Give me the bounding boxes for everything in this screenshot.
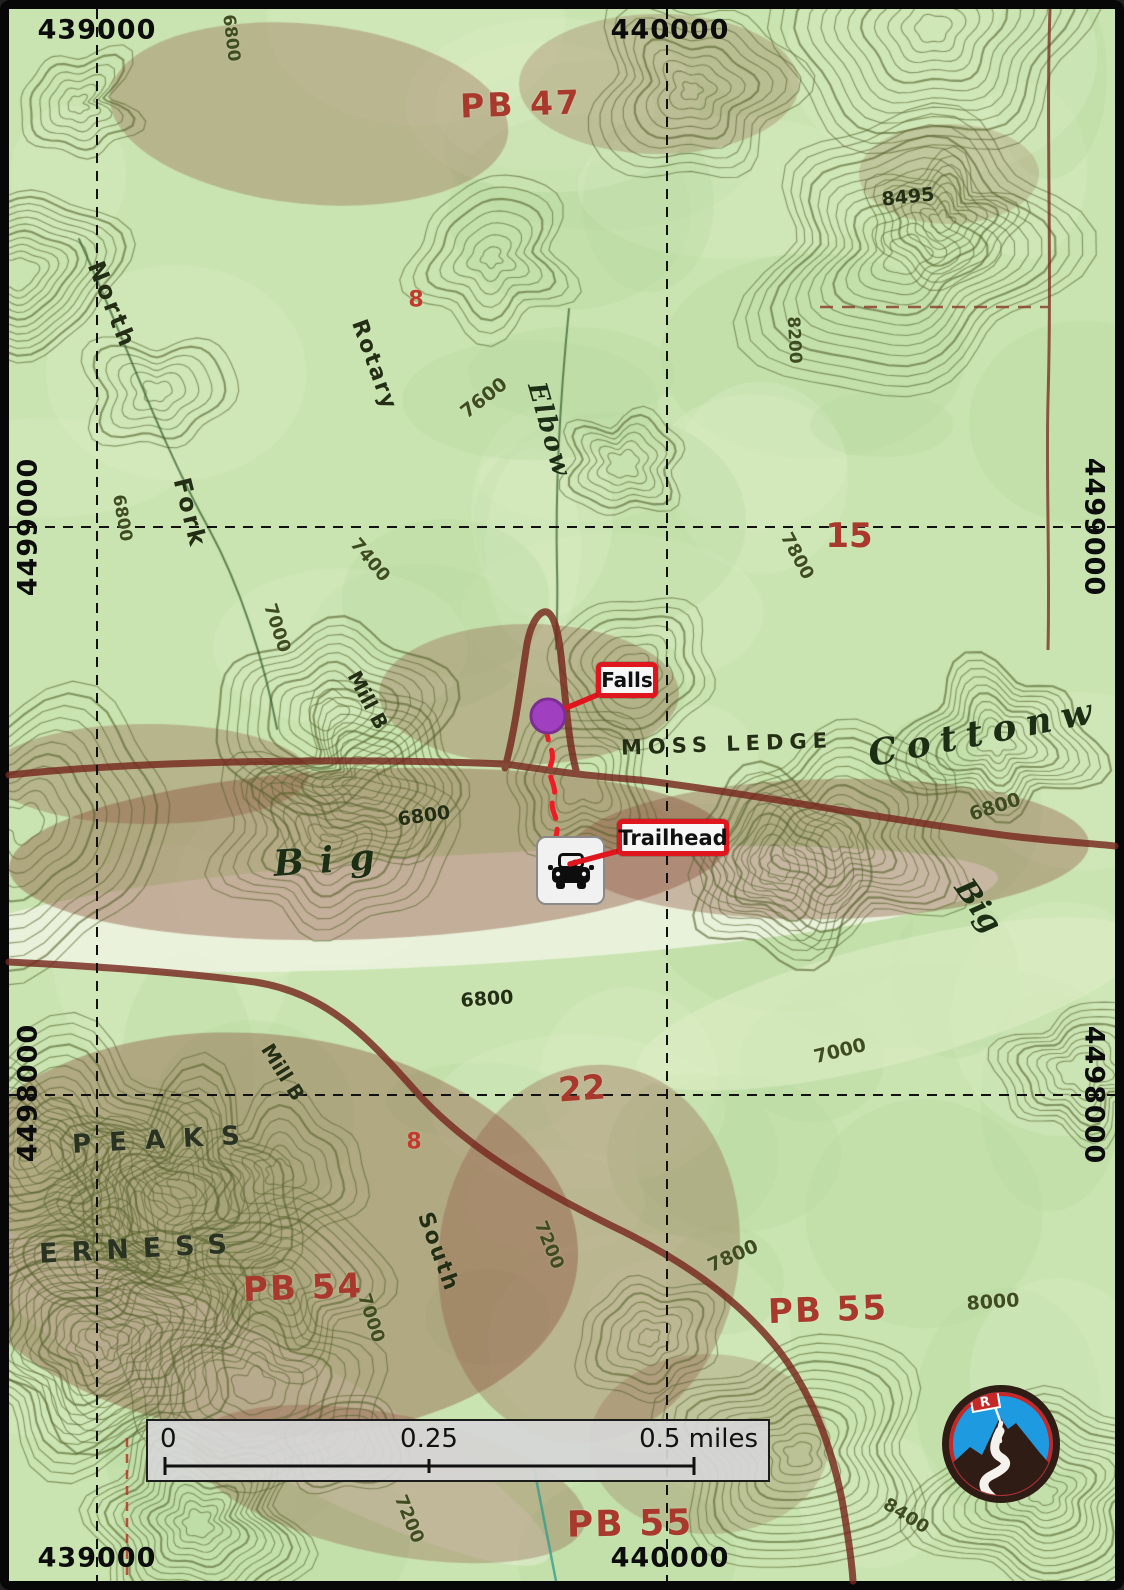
stream-line: [534, 1468, 556, 1581]
map-overlay-graphics: [0, 0, 1124, 1590]
falls-label[interactable]: Falls: [596, 662, 658, 698]
topo-trail-line: [9, 761, 1115, 846]
utm-grid: [9, 9, 1115, 1581]
route-dashed-line: [547, 724, 557, 836]
map-frame: 6800PB 478495North8200Rotary7600ElbowFor…: [0, 0, 1124, 1590]
roadtripryan-logo: R: [942, 1385, 1060, 1503]
scale-bar-line: [148, 1421, 768, 1480]
falls-marker[interactable]: [531, 699, 565, 733]
section-line: [1047, 9, 1050, 650]
trailhead-car-icon[interactable]: [537, 837, 604, 904]
logo-graphic: R: [942, 1385, 1060, 1503]
topo-trail-line: [505, 612, 576, 770]
trailhead-label[interactable]: Trailhead: [617, 819, 729, 856]
falls-label-text: Falls: [601, 668, 653, 692]
topo-trail-line: [9, 962, 853, 1581]
scale-bar: 0 0.25 0.5 miles: [146, 1419, 770, 1482]
trailhead-label-text: Trailhead: [618, 826, 727, 850]
